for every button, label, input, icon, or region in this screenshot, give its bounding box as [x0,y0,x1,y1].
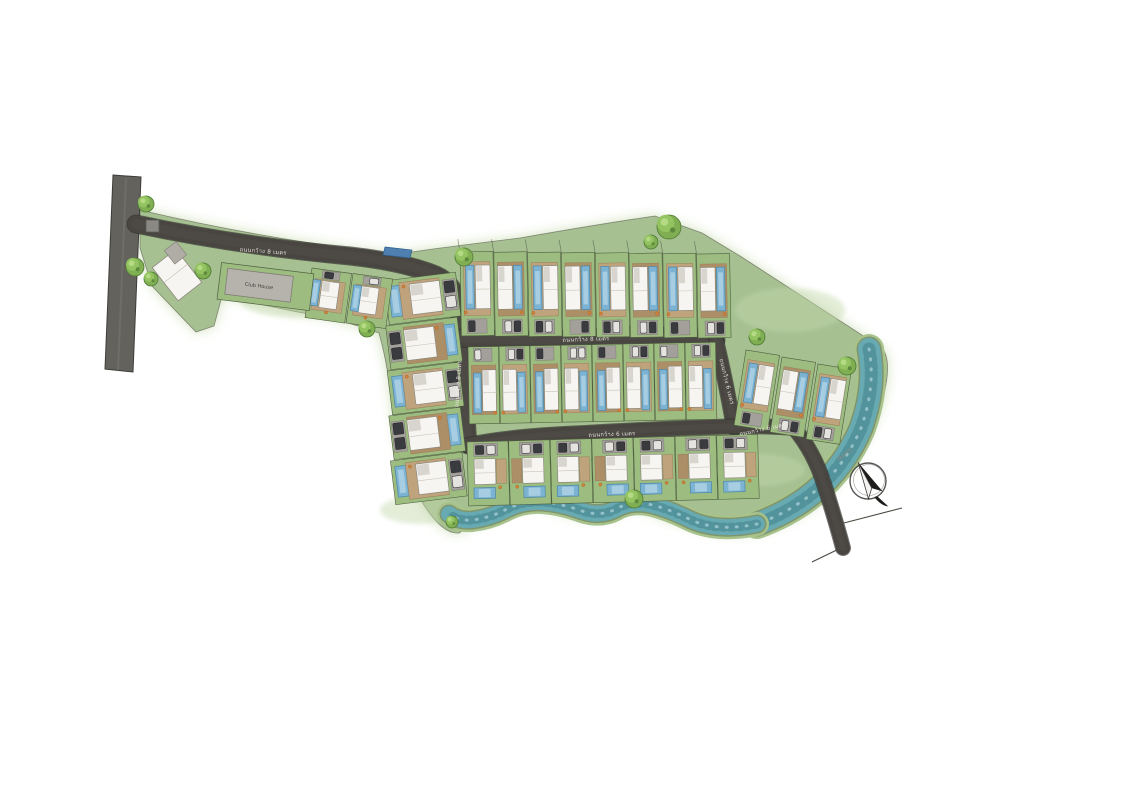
tree-shade [848,366,852,370]
tree-shade [635,499,639,503]
tree-shade [465,257,469,261]
car-icon [641,347,647,357]
wood-deck [663,455,673,480]
car-icon [605,442,613,451]
car-icon [632,347,638,357]
tree-icon [749,329,765,345]
roof-panel [498,267,504,282]
umbrella-icon [599,483,602,486]
car-icon [468,321,475,332]
umbrella-icon [680,408,683,411]
wood-deck [595,456,605,481]
car-icon [823,428,831,439]
tree-shade [452,522,455,525]
car-icon [649,322,656,333]
tree-icon [625,490,643,508]
roof-panel [611,267,617,282]
villa-plot [509,440,552,505]
car-icon [790,422,798,433]
car-icon [814,427,822,438]
roof-panel [523,459,532,468]
car-icon [613,322,620,333]
car-icon [537,349,543,359]
car-icon [694,346,700,356]
roof-panel [405,329,418,341]
car-icon [444,280,455,293]
pool-water-highlight [599,375,604,406]
villa-plot [386,317,463,369]
umbrella-icon [502,411,505,414]
umbrella-icon [665,481,668,484]
car-icon [725,439,733,448]
umbrella-icon [667,313,670,316]
roof-panel [476,266,482,281]
pool-water-highlight [643,375,648,406]
tree-icon [446,516,458,528]
tree-shade [368,329,372,333]
car-icon [604,322,611,333]
villa-plot [627,240,664,338]
car-icon [475,445,483,454]
roof-panel [410,284,423,296]
umbrella-icon [599,312,602,315]
pool-water-highlight [670,272,675,305]
car-icon [522,444,530,453]
wood-deck [512,458,522,483]
villa-plot [593,240,630,338]
villa-plot [592,344,624,422]
pool-water-highlight [515,271,520,304]
car-icon [653,441,661,450]
roof-panel [606,456,615,465]
wood-deck [496,459,506,484]
pool-water-highlight [581,376,586,407]
grass-wash [735,288,845,332]
tree-highlight [628,492,634,498]
roof-panel [690,454,699,463]
roof-panel [558,458,567,467]
tree-icon [359,321,375,337]
car-icon [391,347,402,360]
roof-panel [413,374,426,386]
south-villa-row [467,434,759,506]
umbrella-icon [494,411,497,414]
pool-water-highlight [475,378,480,409]
car-icon [570,348,576,358]
wood-deck [579,457,589,482]
villa-plot [550,439,593,504]
umbrella-icon [618,409,621,412]
car-icon [599,347,605,357]
roof-panel [483,371,489,386]
villa-plot [467,441,510,506]
middle-villa-row [468,342,717,424]
gate-structure [146,220,159,232]
car-icon [389,332,400,345]
tree-icon [657,215,681,239]
pool-water-highlight [645,484,657,493]
tree-highlight [140,198,145,203]
umbrella-icon [324,311,328,315]
umbrella-icon [532,311,535,314]
villa-plot [390,452,467,504]
umbrella-icon [408,465,412,469]
villa-plot [346,274,393,329]
tree-shade [652,242,655,245]
car-icon [517,349,523,359]
wood-deck [746,452,756,477]
tree-highlight [129,260,135,266]
pool-water-highlight [537,377,542,408]
villa-plot [499,346,531,424]
villa-plot [561,345,593,423]
needle-tail [874,493,888,510]
umbrella-icon [564,410,567,413]
tree-icon [138,196,154,212]
villa-plot [387,362,464,414]
tree-icon [455,248,473,266]
tree-shade [152,279,155,282]
umbrella-icon [364,316,368,320]
umbrella-icon [655,312,658,315]
umbrella-icon [405,375,409,379]
villa-plot [530,345,562,423]
car-icon [708,323,715,334]
umbrella-icon [516,485,519,488]
site-plan-page: Club Houseถนนกว้าง 8 เมตรถนนกว้าง 8 เมตร… [0,0,1131,800]
car-icon [475,350,481,360]
tree-shade [147,204,151,208]
pool-water-highlight [467,270,472,303]
pool-water-highlight [718,272,723,305]
roof-panel [627,368,633,383]
pool-water-highlight [695,483,707,492]
umbrella-icon [682,481,685,484]
tree-shade [204,271,208,275]
tree-shade [136,267,140,271]
car-icon [742,413,750,424]
car-icon [508,349,514,359]
roof-panel [503,370,509,385]
roof-panel [689,367,695,382]
roof-panel [475,460,484,469]
pool-water-highlight [661,374,666,405]
master-plan-map: Club Houseถนนกว้าง 8 เมตรถนนกว้าง 8 เมตร… [0,0,1131,800]
car-icon [450,460,461,473]
car-icon [703,345,709,355]
car-icon [394,437,405,450]
car-icon [452,475,463,488]
tree-shade [670,227,675,232]
car-icon [736,439,744,448]
roof-panel [544,267,550,282]
villa-plot [525,239,562,337]
villa-plot [623,343,655,421]
car-icon [688,440,696,449]
villa-plot [389,407,466,459]
tree-icon [644,235,658,249]
pool-water-highlight [535,271,540,304]
car-icon [324,272,334,279]
tree-icon [126,258,144,276]
villa-plot [468,346,500,424]
umbrella-icon [556,410,559,413]
tree-highlight [361,323,366,328]
car-icon [558,443,566,452]
tree-highlight [197,265,202,270]
roof-panel [701,268,707,283]
pool-water-highlight [562,487,574,496]
car-icon [640,322,647,333]
pool-water-highlight [583,271,588,304]
roof-panel [361,287,369,297]
car-icon [445,295,456,308]
car-icon [671,322,678,333]
roof-panel [679,268,685,283]
pool-water-highlight [612,485,624,494]
tree-icon [838,357,856,375]
car-icon [533,444,541,453]
roof-panel [565,369,571,384]
umbrella-icon [748,479,751,482]
tree-icon [195,263,211,279]
pool-water-highlight [479,489,491,498]
car-icon [616,442,624,451]
car-icon [369,278,379,285]
umbrella-icon [402,285,406,289]
umbrella-icon [588,311,591,314]
car-icon [487,445,495,454]
roof-panel [408,419,421,431]
pool-water-highlight [603,272,608,305]
tree-highlight [448,518,452,522]
umbrella-icon [626,409,629,412]
wood-deck [678,454,688,479]
roof-panel [669,367,675,382]
roof-panel [417,464,430,476]
tree-highlight [646,237,650,241]
umbrella-icon [435,326,439,330]
tree-highlight [661,218,669,226]
umbrella-icon [438,416,442,420]
north-villa-row [458,238,731,338]
villa-plot [384,272,461,324]
car-icon [514,321,521,332]
car-icon [642,441,650,450]
pool-water-highlight [705,373,710,404]
roof-panel [545,370,551,385]
tree-shade [758,337,762,341]
roof-panel [725,453,734,462]
umbrella-icon [688,407,691,410]
tree-highlight [146,274,150,278]
survey-line-east [840,508,902,524]
car-icon [505,321,512,332]
tree-highlight [841,359,847,365]
car-icon [661,346,667,356]
villa-plot [492,239,529,337]
roof-panel [641,455,650,464]
umbrella-icon [723,312,726,315]
car-icon [545,321,552,332]
car-icon [582,321,589,332]
villa-plot [717,434,760,499]
umbrella-icon [499,486,502,489]
umbrella-icon [464,311,467,314]
car-icon [570,443,578,452]
pool-water-highlight [519,377,524,408]
car-icon [700,439,708,448]
car-icon [393,422,404,435]
pool-water-highlight [651,272,656,305]
roof-panel [322,282,330,292]
umbrella-icon [520,311,523,314]
tree-icon [144,272,158,286]
roof-panel [566,267,572,282]
roof-panel [634,268,640,283]
tree-highlight [458,250,464,256]
villa-plot [694,241,731,339]
umbrella-icon [582,483,585,486]
car-icon [579,348,585,358]
villa-plot [685,342,717,420]
pool-water-highlight [528,487,540,496]
villa-plot [661,240,698,338]
car-icon [536,321,543,332]
villa-plot [654,343,686,421]
car-icon [717,323,724,334]
roof-panel [607,368,613,383]
pool-water-highlight [728,482,740,491]
villa-plot [559,239,596,337]
tree-highlight [751,331,756,336]
villa-plot [675,435,718,500]
